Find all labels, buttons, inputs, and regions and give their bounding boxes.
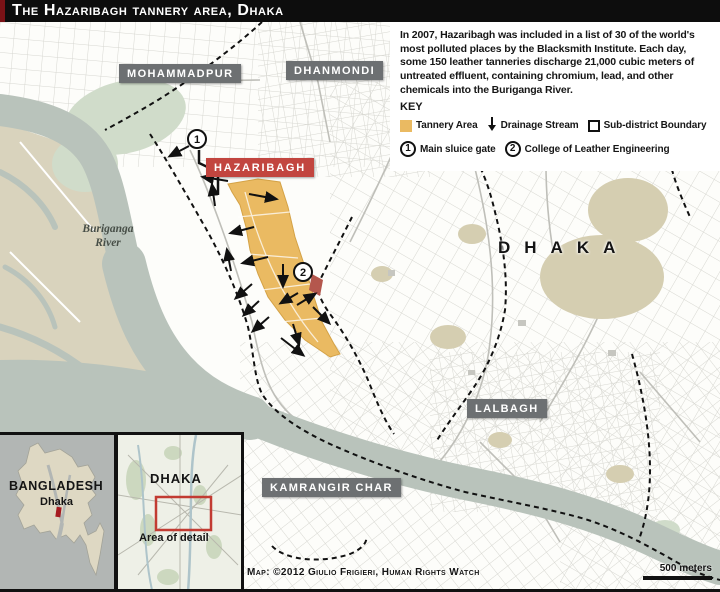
bangladesh-map — [0, 435, 114, 592]
legend-drainage-label: Drainage Stream — [501, 120, 579, 131]
marker-1-number: 1 — [194, 134, 200, 146]
label-mohammadpur: MOHAMMADPUR — [119, 64, 241, 83]
marker-2-number: 2 — [300, 267, 306, 279]
dhaka-inset-map — [118, 435, 241, 592]
legend-drainage: Drainage Stream — [487, 117, 579, 134]
boundary-dashed-icon — [588, 120, 600, 132]
label-dhanmondi: DHANMONDI — [286, 61, 383, 80]
legend-boundary-label: Sub-district Boundary — [604, 120, 707, 131]
label-hazaribagh: HAZARIBAGH — [206, 158, 314, 177]
infographic-map: The Hazaribagh tannery area, Dhaka — [0, 0, 720, 592]
area-of-detail-caption: Area of detail — [139, 532, 209, 544]
legend-college-label: College of Leather Engineering — [525, 144, 670, 155]
info-paragraph: In 2007, Hazaribagh was included in a li… — [400, 29, 711, 97]
legend-sluice-gate: 1 Main sluice gate — [400, 141, 496, 157]
legend-tannery: Tannery Area — [400, 120, 478, 132]
inset-bangladesh: BANGLADESH Dhaka — [0, 435, 114, 592]
tannery-swatch-icon — [400, 120, 412, 132]
legend-row-2: 1 Main sluice gate 2 College of Leather … — [400, 141, 711, 157]
label-kamrangir-char: KAMRANGIR CHAR — [262, 478, 401, 497]
marker-sluice-gate: 1 — [188, 130, 206, 148]
key-title: KEY — [400, 101, 711, 113]
dhaka-inset-label: DHAKA — [150, 471, 202, 486]
legend-sluice-label: Main sluice gate — [420, 144, 496, 155]
inset-panel: BANGLADESH Dhaka — [0, 432, 244, 592]
college-circle-icon: 2 — [505, 141, 521, 157]
scale-bar — [643, 576, 712, 580]
legend-boundary: Sub-district Boundary — [588, 120, 707, 132]
map-credit: Map: ©2012 Giulio Frigieri, Human Rights… — [247, 567, 480, 578]
legend-college: 2 College of Leather Engineering — [505, 141, 670, 157]
river-label-line1: Buriganga — [70, 222, 146, 236]
page-title: The Hazaribagh tannery area, Dhaka — [5, 0, 284, 22]
legend-row-1: Tannery Area Drainage Stream Sub-distric… — [400, 117, 711, 134]
scale-label: 500 meters — [643, 563, 712, 574]
legend-tannery-label: Tannery Area — [416, 120, 478, 131]
label-dhaka: DHAKA — [498, 238, 629, 258]
bangladesh-label: BANGLADESH — [9, 479, 103, 493]
drainage-arrow-icon — [487, 117, 497, 134]
title-bar: The Hazaribagh tannery area, Dhaka — [0, 0, 720, 22]
info-box: In 2007, Hazaribagh was included in a li… — [390, 22, 720, 171]
marker-college: 2 — [294, 263, 312, 281]
river-label-line2: River — [70, 236, 146, 250]
label-lalbagh: LALBAGH — [467, 399, 547, 418]
inset-dhaka: DHAKA Area of detail — [118, 435, 241, 592]
label-buriganga-river: Buriganga River — [70, 222, 146, 251]
sluice-circle-icon: 1 — [400, 141, 416, 157]
scale-indicator: 500 meters — [643, 563, 712, 580]
bangladesh-dhaka-label: Dhaka — [40, 496, 73, 508]
